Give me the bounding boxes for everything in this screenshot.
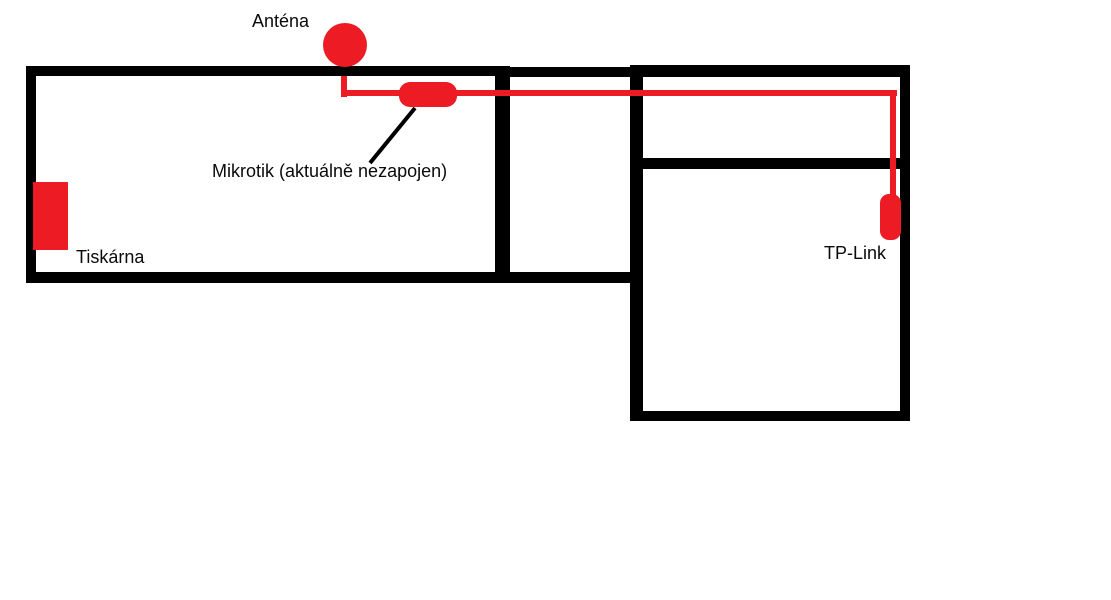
right-building-left-wall (630, 65, 643, 421)
mikrotik-device-icon (399, 82, 457, 107)
tplink-device-icon (880, 194, 901, 240)
printer-label: Tiskárna (76, 248, 144, 268)
paint-diagram-canvas: Anténa Mikrotik (aktuálně nezapojen) Tis… (0, 0, 1111, 600)
network-cable-vertical (890, 93, 896, 197)
right-building-top-wall (630, 65, 910, 77)
left-rooms-bottom-wall (26, 272, 640, 283)
left-room-top-wall (26, 66, 502, 76)
right-building-bottom-wall (630, 411, 910, 421)
right-building-right-wall (900, 65, 910, 421)
antenna-icon (323, 23, 367, 67)
mikrotik-label: Mikrotik (aktuálně nezapojen) (212, 162, 447, 182)
printer-icon (33, 182, 68, 250)
tplink-label: TP-Link (824, 244, 886, 264)
antenna-label: Anténa (252, 12, 309, 32)
left-middle-shared-wall (495, 66, 510, 283)
left-room-left-wall (26, 66, 36, 283)
middle-room-top-wall (509, 67, 640, 77)
right-building-divider-wall (632, 158, 902, 169)
